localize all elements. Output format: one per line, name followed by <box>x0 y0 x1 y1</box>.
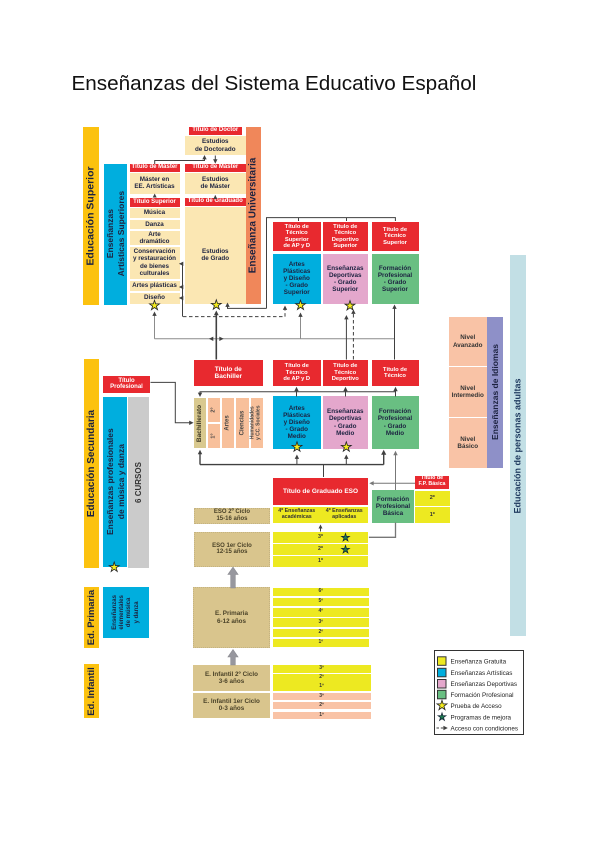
svg-text:Enseñanzas Artísticas: Enseñanzas Artísticas <box>451 670 513 677</box>
svg-text:Formación Profesional: Formación Profesional <box>451 692 514 699</box>
svg-text:Enseñanzas Deportivas: Enseñanzas Deportivas <box>451 681 518 688</box>
svg-text:Enseñanza Gratuita: Enseñanza Gratuita <box>451 659 507 666</box>
svg-text:Programas de mejora: Programas de mejora <box>451 715 512 722</box>
svg-text:Acceso con condiciones: Acceso con condiciones <box>451 726 519 733</box>
svg-text:Prueba de Acceso: Prueba de Acceso <box>451 703 503 710</box>
